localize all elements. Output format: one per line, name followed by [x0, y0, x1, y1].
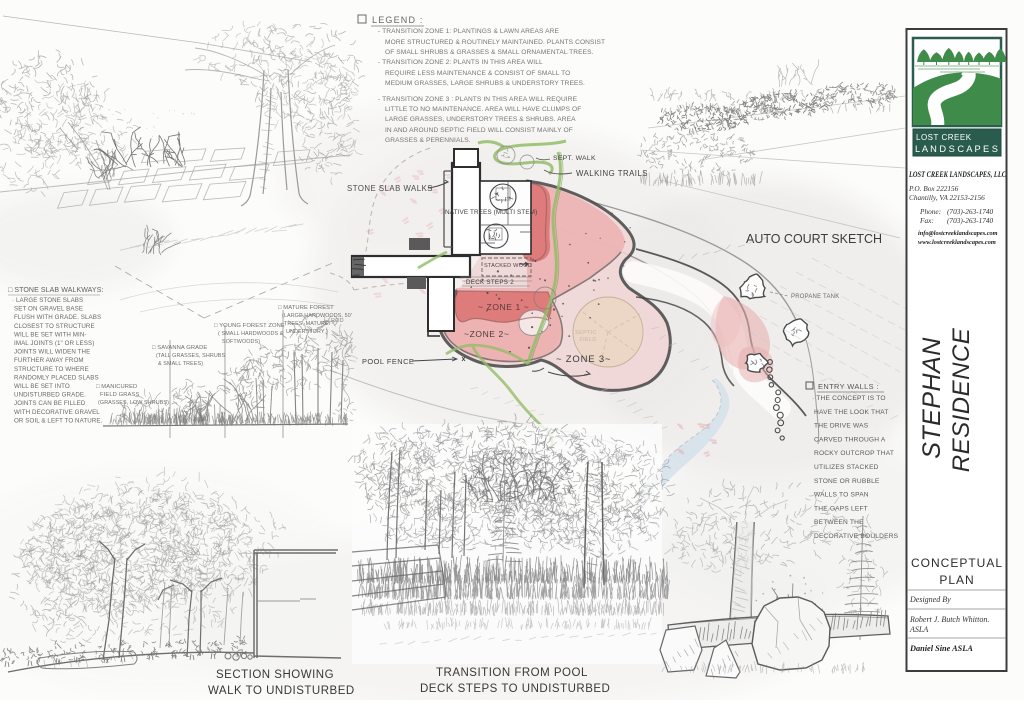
svg-text:AUTO COURT SKETCH: AUTO COURT SKETCH [746, 232, 882, 246]
svg-text:~ ZONE 1 ~: ~ ZONE 1 ~ [478, 302, 529, 312]
svg-text:REQUIRE LESS MAINTENANCE &: REQUIRE LESS MAINTENANCE & CONSIST OF SM… [385, 70, 570, 77]
svg-text:Designed By: Designed By [909, 595, 951, 604]
svg-text:LITTLE TO NO MAINTENANCE. A: LITTLE TO NO MAINTENANCE. AREA WILL HAVE… [385, 106, 581, 113]
svg-text:LOST CREEK LANDSCAPES, LLC: LOST CREEK LANDSCAPES, LLC [908, 169, 1006, 179]
svg-text:· THE CONCEPT IS TO: · THE CONCEPT IS TO [812, 395, 886, 402]
svg-text:(LARGE HARDWOODS, 50': (LARGE HARDWOODS, 50' [282, 313, 352, 319]
svg-text:FURTHER AWAY FROM: FURTHER AWAY FROM [14, 357, 84, 364]
svg-text:(703)-263-1740: (703)-263-1740 [947, 216, 994, 225]
svg-text:JOINTS WILL WIDEN THE: JOINTS WILL WIDEN THE [14, 349, 90, 356]
svg-text:Daniel Sine ASLA: Daniel Sine ASLA [909, 644, 973, 653]
svg-text:Phone:: Phone: [919, 207, 941, 216]
svg-text:FLUSH WITH GRADE. SLABS: FLUSH WITH GRADE. SLABS [14, 314, 101, 321]
svg-text:( SMALL HARDWOODS &: ( SMALL HARDWOODS & [218, 331, 284, 337]
svg-text:STONE OR RUBBLE: STONE OR RUBBLE [814, 478, 880, 485]
svg-text:PROPANE TANK: PROPANE TANK [791, 294, 839, 300]
svg-text:WILL BE SET WITH MIN-: WILL BE SET WITH MIN- [14, 331, 87, 338]
svg-text:SET ON GRAVEL BASE: SET ON GRAVEL BASE [14, 306, 83, 313]
svg-text:STRUCTURE TO WHERE: STRUCTURE TO WHERE [14, 366, 89, 373]
svg-text:MORE STRUCTURED & ROUTINELY: MORE STRUCTURED & ROUTINELY MAINTAINED. … [385, 39, 605, 46]
svg-text:UNDERSTORY ): UNDERSTORY ) [286, 329, 328, 335]
svg-text:P.O. Box 222156: P.O. Box 222156 [908, 184, 959, 193]
svg-text:WALK TO UNDISTURBED: WALK TO UNDISTURBED [208, 685, 355, 697]
svg-text:SEPT. WALK: SEPT. WALK [553, 155, 596, 162]
svg-text:ASLA: ASLA [909, 625, 928, 634]
svg-text:JOINTS CAN BE FILLED: JOINTS CAN BE FILLED [14, 400, 86, 407]
svg-text:□ YOUNG FOREST ZONE: □ YOUNG FOREST ZONE [214, 323, 285, 329]
svg-text:WALKING TRAILS: WALKING TRAILS [576, 169, 648, 178]
svg-text:CARVED THROUGH A: CARVED THROUGH A [814, 436, 886, 443]
svg-text:□ MATURE FOREST: □ MATURE FOREST [278, 305, 334, 311]
svg-text:OF SMALL SHRUBS & GRASSES &: OF SMALL SHRUBS & GRASSES & SMALL ORNAME… [385, 49, 594, 56]
svg-text:IN AND AROUND SEPTIC FIELD: IN AND AROUND SEPTIC FIELD WILL CONSIST … [385, 127, 573, 134]
svg-text:~ZONE 2~: ~ZONE 2~ [464, 329, 509, 339]
svg-text:THE GAPS LEFT: THE GAPS LEFT [814, 505, 868, 512]
svg-text:CLOSEST TO STRUCTURE: CLOSEST TO STRUCTURE [14, 323, 95, 330]
svg-text:RANDOMLY PLACED SLABS: RANDOMLY PLACED SLABS [14, 374, 99, 381]
svg-text:- TRANSITION ZONE 1: PLANT: - TRANSITION ZONE 1: PLANTINGS & LAWN AR… [378, 28, 559, 35]
svg-text:SOFTWOODS): SOFTWOODS) [222, 339, 260, 345]
svg-text:THE DRIVE WAS: THE DRIVE WAS [814, 423, 869, 430]
svg-text:SEPTIC: SEPTIC [575, 330, 597, 336]
svg-text:SECTION SHOWING: SECTION SHOWING [216, 669, 334, 681]
svg-text:HAVE THE LOOK THAT: HAVE THE LOOK THAT [814, 409, 889, 416]
svg-text:LEGEND :: LEGEND : [372, 15, 424, 25]
svg-text:~ ZONE 3~: ~ ZONE 3~ [556, 354, 611, 365]
svg-text:POOL FENCE: POOL FENCE [362, 357, 414, 366]
svg-text:STONE SLAB WALKS: STONE SLAB WALKS [347, 184, 433, 193]
svg-text:LOST CREEK: LOST CREEK [916, 133, 972, 142]
svg-text:TRANSITION FROM POOL: TRANSITION FROM POOL [436, 667, 588, 679]
svg-text:RESIDENCE: RESIDENCE [948, 327, 975, 472]
svg-text:IMAL JOINTS (1" OR LESS): IMAL JOINTS (1" OR LESS) [14, 340, 94, 347]
svg-text:WITH DECORATIVE GRAVEL: WITH DECORATIVE GRAVEL [14, 409, 100, 416]
svg-text:□ STONE SLAB WALKWAYS:: □ STONE SLAB WALKWAYS: [8, 287, 104, 294]
svg-text:L A N D S C A P E S: L A N D S C A P E S [915, 144, 998, 155]
svg-text:ROCKY OUTCROP THAT: ROCKY OUTCROP THAT [814, 450, 894, 457]
svg-text:FIELD GRASS: FIELD GRASS [100, 392, 139, 398]
svg-text:□ SAVANNA GRADE: □ SAVANNA GRADE [152, 345, 207, 351]
svg-text:Chantilly, VA 22153-2156: Chantilly, VA 22153-2156 [909, 193, 985, 202]
svg-text:BETWEEN THE: BETWEEN THE [814, 519, 864, 526]
svg-text:- TRANSITION ZONE 2: PLAN: - TRANSITION ZONE 2: PLANTS IN THIS AREA… [378, 59, 543, 66]
svg-text:· LARGE STONE SLABS: · LARGE STONE SLABS [12, 297, 83, 304]
svg-text:UNDISTURBED GRADE.: UNDISTURBED GRADE. [14, 392, 86, 399]
svg-text:LARGE GRASSES, UNDERSTORY TR: LARGE GRASSES, UNDERSTORY TREES & SHRUBS… [385, 116, 576, 123]
svg-text:info@lostcreeklandscapes.com: info@lostcreeklandscapes.com [918, 230, 998, 237]
svg-text:ENTRY WALLS :: ENTRY WALLS : [818, 382, 879, 391]
svg-text:TREES, MATURE: TREES, MATURE [284, 321, 329, 327]
svg-text:UTILIZES STACKED: UTILIZES STACKED [814, 464, 879, 471]
svg-text:(703)-263-1740: (703)-263-1740 [947, 207, 994, 216]
svg-text:MEDIUM GRASSES, LARGE SHRUB: MEDIUM GRASSES, LARGE SHRUBS & UNDERSTOR… [385, 80, 585, 87]
svg-text:& SMALL TREES): & SMALL TREES) [158, 361, 203, 367]
svg-text:- TRANSITION ZONE 3 : PLANT: - TRANSITION ZONE 3 : PLANTS IN THIS ARE… [378, 96, 578, 103]
svg-text:GRASSES & PERENNIALS.: GRASSES & PERENNIALS. [385, 137, 471, 144]
svg-text:CONCEPTUAL: CONCEPTUAL [911, 556, 1003, 570]
svg-text:WALLS TO SPAN: WALLS TO SPAN [814, 492, 869, 499]
svg-text:(TALL GRASSES, SHRUBS: (TALL GRASSES, SHRUBS [156, 353, 226, 359]
svg-text:FIELD: FIELD [579, 337, 596, 343]
svg-text:PLAN: PLAN [939, 573, 974, 587]
svg-text:Fax:: Fax: [919, 216, 934, 225]
svg-text:OR SOIL & LEFT TO NATURE.: OR SOIL & LEFT TO NATURE. [14, 417, 103, 424]
svg-text:www.lostcreeklandscapes.com: www.lostcreeklandscapes.com [918, 239, 996, 246]
svg-text:(GRASSES, LOW SHRUBS): (GRASSES, LOW SHRUBS) [98, 400, 169, 406]
svg-text:DECK STEPS 2: DECK STEPS 2 [466, 279, 514, 286]
svg-text:Robert J. Butch Whitton.: Robert J. Butch Whitton. [909, 615, 989, 624]
svg-text:DECK STEPS TO UNDISTURBED: DECK STEPS TO UNDISTURBED [420, 683, 610, 695]
svg-text:NATIVE TREES (MULTI STEM): NATIVE TREES (MULTI STEM) [445, 209, 537, 216]
svg-text:WILL BE SET INTO: WILL BE SET INTO [14, 383, 70, 390]
svg-text:□ MANICURED: □ MANICURED [96, 384, 137, 390]
svg-text:STEPHAN: STEPHAN [918, 337, 946, 459]
